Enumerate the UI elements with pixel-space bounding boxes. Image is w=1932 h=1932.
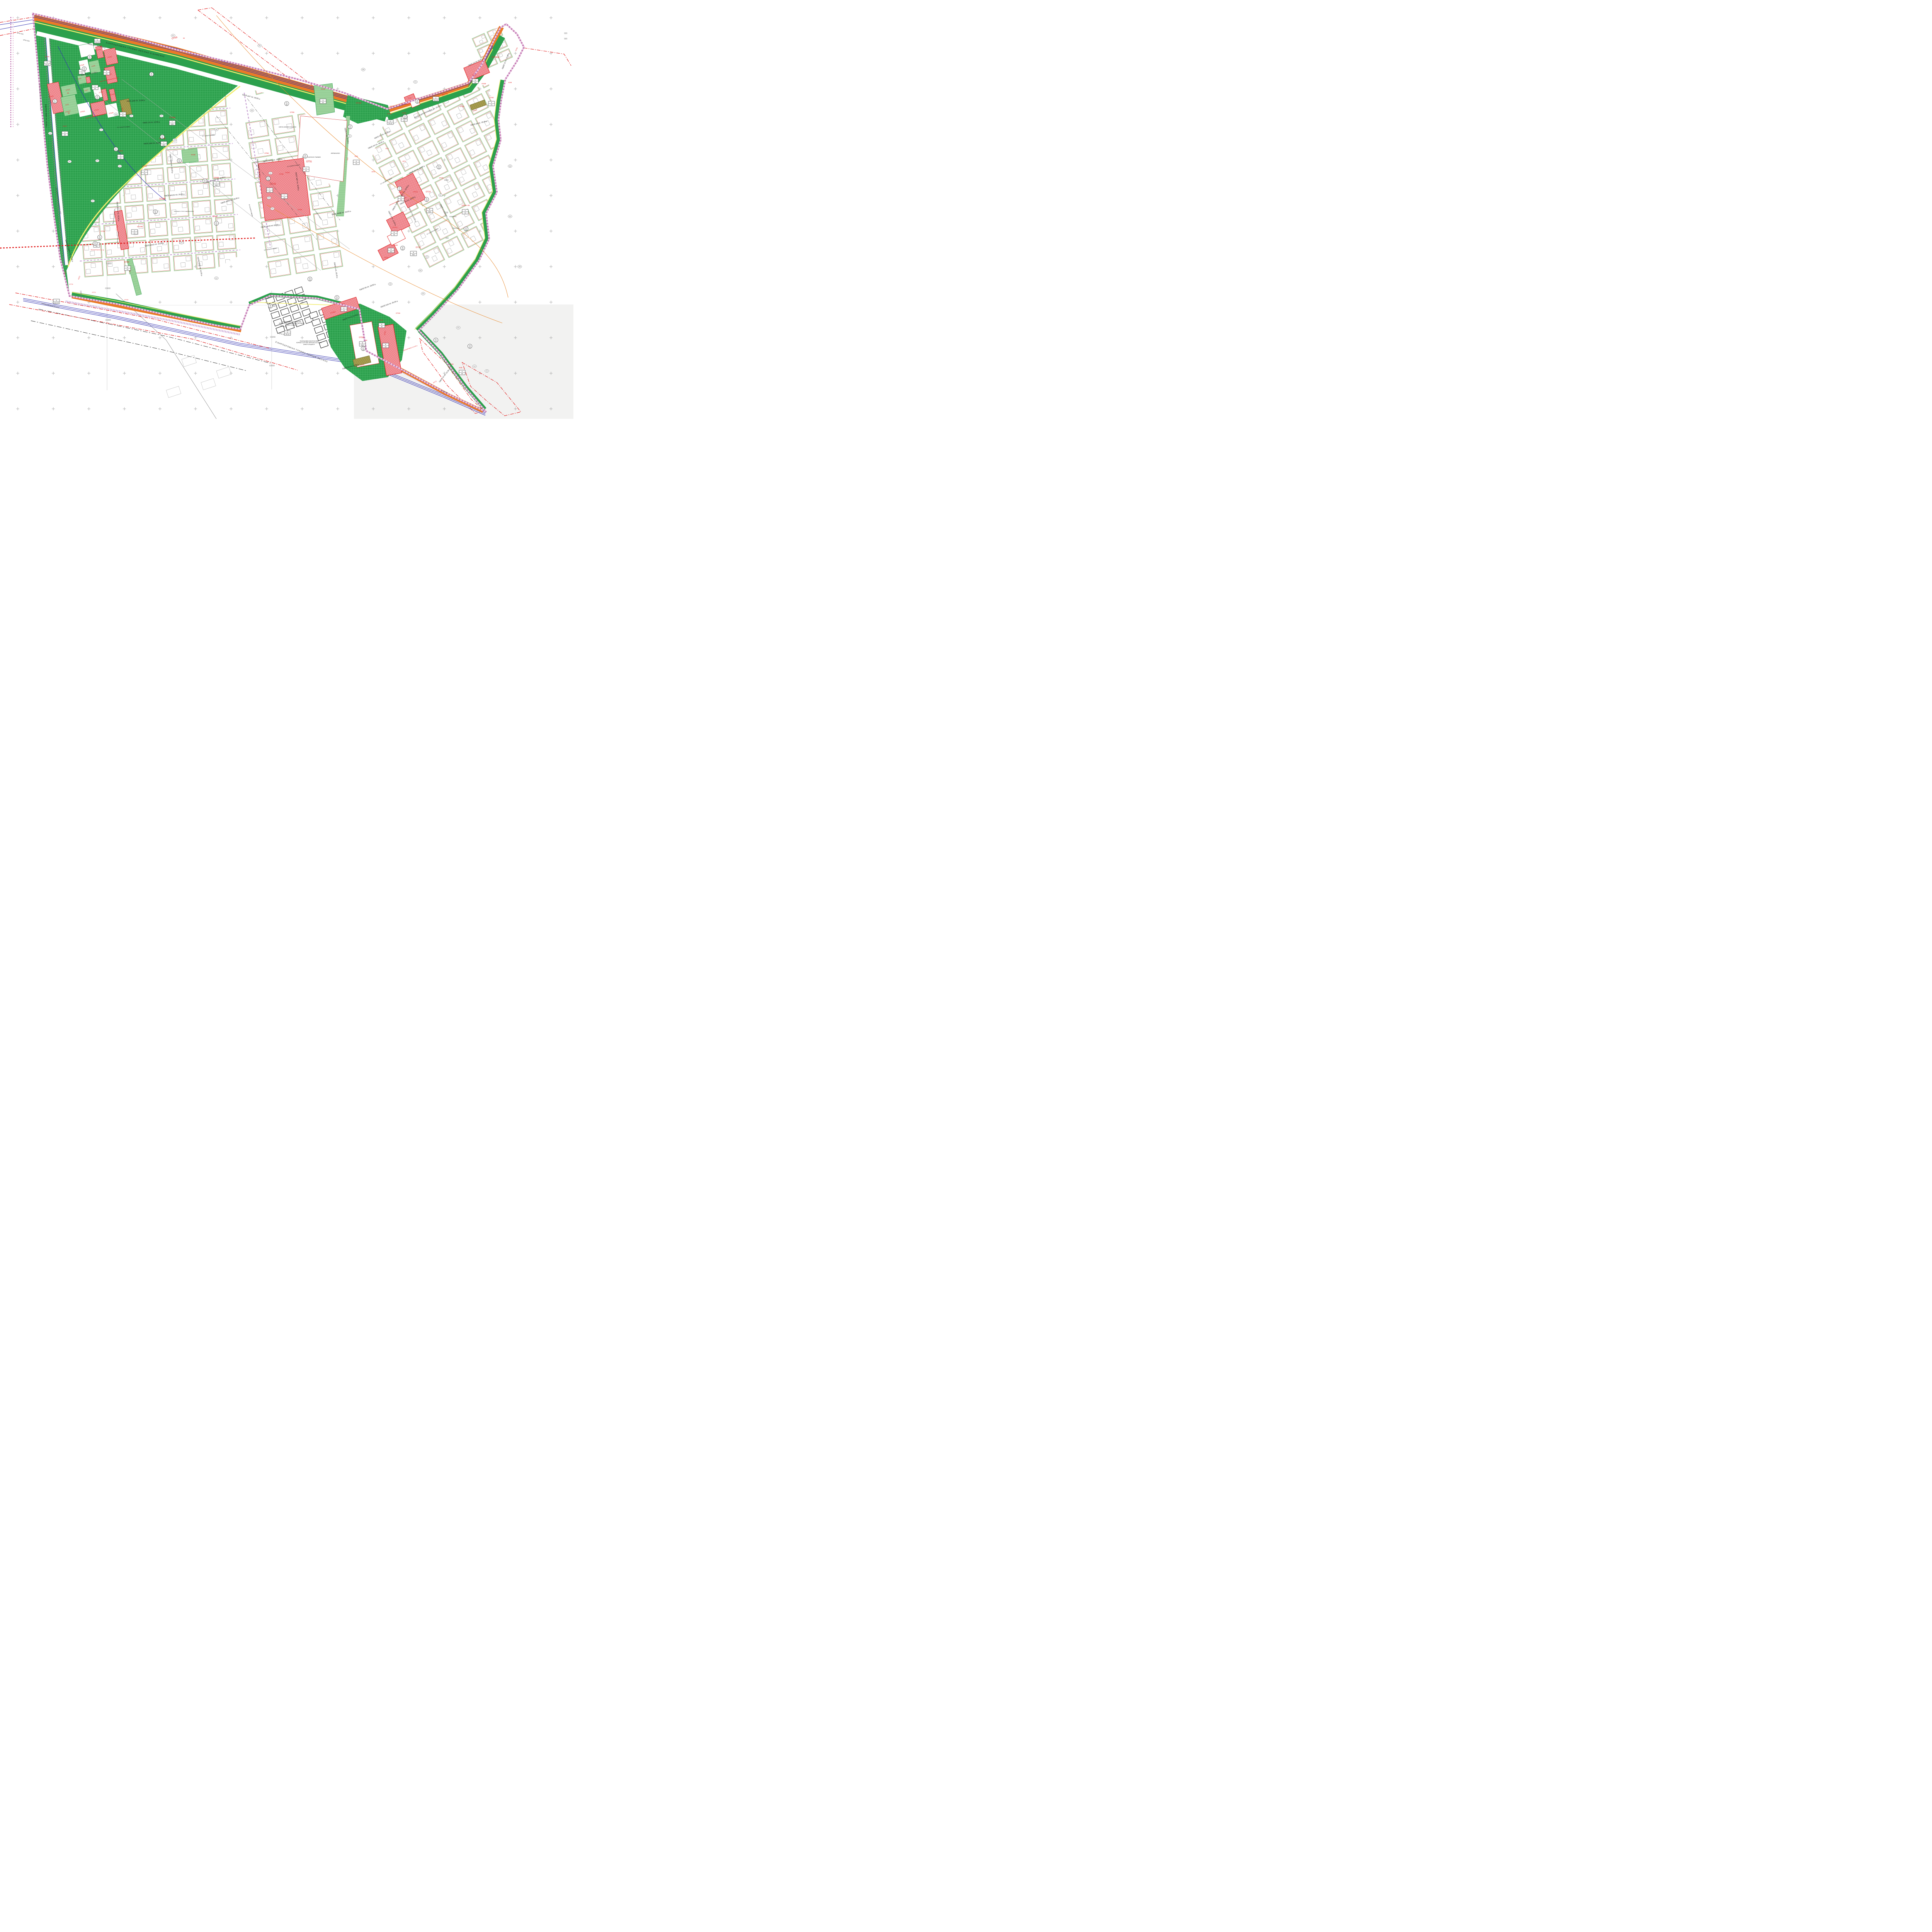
building (198, 190, 203, 195)
building (215, 189, 219, 194)
area-label: ΧΩΡΟΣ ΑΠΟΘΕΣΗΣ ΑΛΑΤΟΣ (279, 126, 296, 128)
badge-top: 02 (162, 135, 163, 137)
parcel-number-text: 009 (389, 283, 391, 285)
zone-code-box: ΒΚΩ (398, 196, 404, 201)
zone-code-bottom: ΥΟ (305, 170, 307, 171)
block-label: ΟΤ46 (298, 209, 302, 211)
parcel-number: 001 (129, 114, 133, 117)
block-label: ΚΧ9 (509, 82, 512, 83)
badge-bottom: 56 (417, 102, 418, 103)
zone-code-bottom: ΚΩ (474, 82, 476, 83)
parcel-number: 036 (114, 113, 118, 116)
parcel-number-text: 004 (160, 115, 162, 117)
zone-code-bottom: ΥΟ (491, 104, 493, 105)
parcel-number: 005 (270, 207, 274, 210)
parcel-number: 021 (180, 241, 184, 244)
block-label: ΟΤ1 (386, 148, 389, 150)
building (202, 243, 206, 248)
building (86, 269, 90, 274)
block-label: ΟΤ71 (92, 291, 96, 293)
badge-top: 01 (465, 227, 467, 229)
block-label: ΚΦ1 (473, 74, 476, 77)
parcel-number: 022 (99, 128, 103, 131)
building (141, 260, 146, 264)
badge-bottom: 00 (115, 150, 117, 151)
building (205, 207, 209, 212)
parcel-badge: 0145 (266, 177, 270, 181)
zone-code-bottom: ΚΩ (269, 190, 271, 192)
badge-bottom: 48 (162, 137, 163, 139)
block-label: ΚΧ7 (347, 157, 349, 160)
building (149, 206, 153, 210)
parcel-badge: 0151 (303, 154, 308, 158)
building (266, 242, 272, 248)
red-note: ΚΦ (68, 112, 70, 114)
zone-code-box: ΑΠΡ (92, 85, 98, 90)
zone-code-box: ΔΥΟ (131, 230, 138, 234)
building (107, 250, 112, 255)
zone-code-box: ΔΧΣ (120, 112, 126, 117)
parcel-badge: 0239 (153, 210, 158, 214)
parcel-number-text: 006 (268, 197, 270, 199)
parcel-number: 002 (485, 369, 489, 372)
building (260, 121, 265, 127)
block-label: ΟΤ15 (396, 312, 400, 314)
block-label: ΟΤ51Β (356, 102, 361, 104)
building (91, 263, 95, 268)
zone-code-bottom: ΚΩ (400, 199, 402, 201)
badge-bottom: 19 (426, 200, 427, 201)
building (203, 255, 207, 260)
block-label: ΚΧ30 (408, 97, 412, 99)
grid-coordinate: 020 (564, 32, 568, 35)
zone-code-box: ΓΚΩ (267, 188, 273, 192)
parcel-number-text: 010 (473, 366, 475, 367)
zone-code-bottom: ΣΙΔ.Ο.Μ (95, 41, 100, 43)
badge-top: 03 (417, 100, 418, 101)
parcel-badge: 0352 (95, 95, 100, 100)
building (318, 194, 324, 199)
block-label: ΟΤ61 (402, 112, 406, 114)
parcel-number-text: 074 (49, 133, 51, 134)
parcel-number: 006 (267, 196, 271, 199)
block-label: ΟΤ58 (359, 337, 364, 339)
building (158, 187, 163, 192)
parcel-number: 008 (173, 138, 177, 141)
parcel-number: 050 (508, 165, 512, 167)
parcel-badge: 0152 (88, 55, 92, 60)
parcel-badge: 0143 (203, 179, 207, 183)
parcel-number: 035 (214, 128, 218, 131)
zone-code-bottom: ΚΩ (385, 346, 387, 347)
badge-top: 17 (115, 148, 117, 149)
grid-coordinate: 03000 (269, 365, 275, 367)
building (303, 264, 308, 269)
building (229, 236, 234, 240)
badge-top: 00 (349, 125, 351, 127)
parcel-number-text: 035 (215, 129, 217, 130)
badge-bottom: 52 (83, 69, 85, 71)
red-note: ΚΦ (67, 92, 69, 94)
badge-bottom: 00 (151, 75, 152, 76)
block-label: ΚΧ29 (191, 154, 196, 156)
building (173, 150, 177, 155)
parcel-badge: 0107 (335, 296, 339, 300)
badge-bottom: 00 (469, 347, 471, 348)
building (223, 147, 228, 151)
zone-code-box: ΔΠΡ (459, 370, 465, 375)
parcel-number: 017 (171, 34, 175, 37)
badge-top: 01 (404, 115, 406, 117)
zone-code-bottom: ΚΩ (106, 73, 108, 75)
building (211, 130, 216, 134)
zone-code-box: ΔΥΟ (353, 160, 359, 165)
city-block (268, 259, 291, 278)
badge-bottom: 58 (362, 349, 364, 350)
zone-code-bottom: ΠΡ-ΣΔ (286, 333, 289, 335)
zone-code-bottom: ΠΡ-ΣΔ (388, 122, 392, 124)
map-shape: ΔΗΜΟΥ ΕΧΕΔΩΡΟΥ (286, 324, 298, 326)
badge-bottom: 61 (404, 117, 406, 119)
building (228, 223, 233, 228)
building (174, 245, 179, 250)
area-label: ΘΕΡΜΟΚΗΠΙΟ (331, 153, 340, 154)
zone-code-bottom: ΥΟ (144, 173, 146, 174)
parcel-badge: 0132 (98, 235, 102, 240)
parcel-number-text: 002 (457, 327, 459, 328)
parcel-number: 009 (388, 282, 392, 285)
zone-code-bottom: ΧΜΟ (162, 144, 165, 146)
building (219, 242, 223, 247)
parcel-badge: 0356 (415, 99, 420, 104)
badge-bottom: 52 (54, 102, 56, 103)
parcel-number: 008 (361, 68, 365, 71)
zone-code-bottom: ΠΡ (461, 373, 463, 374)
city-block (310, 191, 333, 210)
parcel-number-text: 021 (180, 242, 182, 243)
badge-bottom: 45 (267, 179, 269, 180)
building (191, 173, 196, 177)
zone-code-box: ΓΧΜΟ (169, 121, 175, 125)
block-label: ΟΤ59 (449, 363, 454, 365)
building (157, 246, 162, 251)
badge-top: 00 (94, 242, 96, 243)
block-label: ΟΤ33Β (137, 226, 143, 228)
parcel-number: 012 (250, 109, 254, 112)
zone-code-box: ΒΧΜΟ (410, 251, 417, 256)
block-label: ΟΤ48Α (169, 117, 176, 119)
parcel-number: 024 (508, 215, 512, 218)
parcel-badge: 0000 (401, 246, 405, 250)
zone-code-bottom: ΣΙΔ.Ο.Μ (54, 302, 59, 303)
grid-coordinate: 03400 (105, 319, 111, 321)
red-note: ΠΕΖΟΔΡΟΜΟΣ πλ. 2μ (91, 249, 104, 251)
block-label: ΚΧ24 (379, 319, 383, 321)
building (313, 201, 319, 206)
ot52-cluster-block (77, 102, 92, 117)
building (105, 226, 110, 231)
badge-top: 07 (54, 100, 56, 101)
building (178, 227, 183, 232)
block-label: ΚΧ16 (45, 56, 49, 58)
building (182, 203, 187, 208)
building (302, 223, 308, 228)
badge-bottom: 00 (270, 306, 271, 308)
zone-code-box: ΓΚΩ (281, 194, 287, 199)
building (274, 119, 279, 125)
grid-coordinate: 000 (564, 38, 568, 40)
parcel-number-text: 001 (130, 115, 132, 117)
zone-code-box: ΒΚΩ (391, 231, 397, 236)
badge-bottom: 00 (402, 248, 403, 250)
block-label: ΟΤ46 (279, 173, 284, 175)
block-label: ΟΤ51 (306, 161, 312, 163)
building (221, 112, 225, 116)
red-note: ΚΧ (442, 94, 444, 95)
block-label: ΚΧ28 (321, 88, 325, 90)
parcel-badge: 0161 (403, 115, 407, 119)
building (125, 189, 130, 194)
block-label: ΚΧ8 (459, 367, 463, 369)
block-label: ΟΤ2 (355, 155, 358, 157)
block-label: ΟΤ55 (290, 111, 294, 113)
block-label: ΟΤ11Α (392, 226, 398, 228)
parcel-number: 014 (413, 80, 417, 83)
city-block (262, 219, 285, 238)
block-label: ΟΤ18 (416, 247, 421, 249)
parcel-badge: 1700 (114, 147, 118, 151)
zone-code-bottom: ΠΡ-ΣΔ (45, 64, 49, 65)
parcel-number: 001 (439, 194, 442, 196)
badge-top: 02 (83, 67, 85, 69)
building (153, 259, 157, 264)
building (289, 137, 294, 143)
building (213, 153, 217, 158)
parcel-badge: 0144 (177, 159, 182, 163)
building (270, 269, 276, 274)
zone-code-box: ΔΥΟ (341, 307, 347, 311)
parcel-badge: 0252 (82, 67, 87, 71)
building (316, 180, 322, 185)
building (180, 168, 184, 172)
red-note: ΚΦ (366, 340, 367, 341)
parcel-number-text: 008 (173, 139, 175, 141)
zone-code-bottom: ΧΜΟ (171, 123, 174, 125)
parcel-badge: 0000 (348, 125, 352, 129)
zone-code-box: ΔΠΡ (320, 99, 326, 104)
building (219, 254, 224, 259)
zone-code-bottom: ΠΡ (322, 102, 324, 103)
building (158, 175, 162, 180)
building (181, 262, 185, 267)
building (322, 260, 328, 266)
building (203, 184, 208, 189)
zone-code-box: ΔΥΟ (462, 209, 468, 214)
badge-bottom: 43 (204, 181, 206, 183)
parcel-number-text: 015 (422, 293, 424, 294)
parcel-number-text: 024 (509, 216, 511, 217)
block-label: ΚΧ18 (124, 299, 129, 301)
block-label: ΟΤ32 (100, 230, 105, 232)
zone-code-bottom: ΧΜΟ (428, 211, 431, 213)
badge-bottom: 39 (155, 212, 156, 214)
zone-code-bottom: ΠΡ (64, 134, 66, 136)
zone-code-top: Γ (216, 182, 217, 184)
zone-code-box: ΔΥΟ (488, 101, 495, 106)
building (140, 248, 145, 252)
parcel-number-text: 014 (414, 81, 416, 83)
parcel-number-text: 008 (362, 69, 364, 70)
parcel-badge: 0119 (425, 197, 429, 202)
zone-code-box: ΔΣΙΔ.Ο.Μ (433, 97, 439, 101)
badge-bottom: 55 (286, 104, 287, 105)
parcel-number: 001 (348, 134, 352, 137)
badge-top: 01 (438, 165, 440, 167)
building (206, 219, 210, 224)
building (333, 252, 339, 258)
parcel-number-text: 050 (509, 165, 511, 167)
building (277, 145, 283, 151)
zone-code-bottom: ΚΩ (96, 245, 98, 247)
parcel-number-text: 012 (251, 110, 253, 111)
building (127, 213, 131, 218)
block-label: ΟΤ2 (372, 171, 375, 173)
block-label: ΟΤ56Α (492, 56, 499, 59)
zone-code-box: ΔΠΡ-ΣΔ (387, 120, 393, 124)
block-label: ΟΤ1 (403, 160, 406, 162)
parcel-number-text: 013 (215, 277, 217, 279)
red-note: ΚΧ (183, 37, 185, 39)
building (150, 229, 155, 234)
zone-code-bottom: ΧΜΟ (389, 251, 393, 252)
building (296, 258, 301, 264)
parcel-badge: 0000 (93, 241, 97, 246)
badge-top: 01 (99, 236, 100, 237)
zone-code-bottom: ΣΙΔ.Ο.Μ (434, 99, 438, 101)
grid-coordinate: 03800 (106, 263, 112, 265)
city-block (291, 235, 314, 254)
zone-code-box: ΒΚΩ (383, 343, 389, 348)
parcel-number-text: 002 (486, 370, 488, 372)
badge-top: 00 (402, 247, 403, 248)
zone-code-bottom: ΥΟ (355, 163, 357, 164)
zone-code-box: ΔΥΟ (141, 170, 148, 175)
grid-coordinate: 000 (446, 237, 449, 240)
parcel-badge: 0155 (285, 102, 289, 106)
city-block (246, 120, 269, 139)
badge-top: 01 (426, 198, 427, 199)
zone-code-top: Γ (284, 195, 285, 196)
parcel-number: 010 (118, 165, 122, 167)
badge-top: 01 (336, 296, 338, 298)
grid-coordinate: 4200 (444, 212, 448, 214)
zone-code-bottom: ΚΩ (393, 234, 395, 235)
parcel-number: 010 (473, 365, 476, 367)
parcel-badge: 0752 (53, 99, 57, 104)
grid-coordinate: 4400 (444, 179, 448, 182)
building (114, 267, 118, 272)
building (155, 223, 160, 228)
building (84, 246, 89, 250)
block-label: ΟΤ56Δ (401, 103, 406, 105)
parcel-number: 004 (258, 44, 262, 47)
block-label: ΚΧ20 (387, 113, 392, 115)
parcel-badge: 0158 (361, 347, 366, 351)
zone-code-bottom: ΚΩ (284, 197, 286, 198)
building (264, 229, 270, 234)
kx29 (182, 148, 198, 163)
building (222, 206, 226, 211)
building (276, 261, 281, 267)
zone-code-box: ΔΥΟ (124, 266, 131, 270)
zone-code-top: Γ (172, 121, 173, 123)
zone-code-bottom: ΥΟ (464, 212, 466, 214)
block-label: ΟΤ40 (213, 216, 218, 218)
area-label: ΚΑΤΑΣΚΕΥΗ ΤΥΠΟΥ ΘΕΡΜΟΚΗΠΙΟΥ (174, 211, 194, 212)
zone-code-box: ΔΚΩ (472, 79, 478, 83)
parcel-number: 007 (91, 199, 95, 202)
block-label: ΚΧ17 (63, 125, 67, 127)
grid-coordinate: 03600 (105, 287, 111, 290)
zone-code-bottom: ΥΟ (127, 269, 129, 270)
badge-top: 01 (309, 277, 311, 279)
parcel-number-text: 007 (92, 200, 94, 202)
badge-bottom: 46 (309, 279, 311, 281)
parcel-number: 013 (214, 277, 218, 279)
parcel-badge: 0126 (464, 227, 468, 231)
zone-code-box: ΓΧΜΟ (213, 182, 219, 186)
badge-top: 03 (97, 96, 98, 97)
badge-top: 03 (469, 345, 471, 346)
building (131, 195, 136, 199)
parcel-badge: 0300 (468, 344, 472, 349)
parcel-number: 074 (48, 132, 52, 134)
parcel-number-text: 013 (426, 256, 428, 258)
zone-code-box: ΒΧΜΟ (388, 248, 394, 253)
badge-top: 01 (435, 338, 437, 340)
badge-bottom: 52 (97, 98, 98, 99)
badge-top: 01 (179, 159, 180, 161)
badge-top: 01 (399, 187, 400, 189)
building (196, 167, 201, 171)
parcel-number-text: 001 (349, 135, 350, 137)
building (189, 137, 194, 142)
zone-code-bottom: ΧΜΟ (215, 184, 218, 186)
parcel-number-text: 010 (119, 165, 121, 167)
zone-code-box: ΔΠΡ-ΣΔ (284, 331, 291, 335)
parcel-number: 015 (421, 292, 425, 295)
badge-bottom: 51 (304, 156, 306, 158)
parcel-badge: 0140 (214, 221, 219, 226)
zone-code-box: ΓΧΜΟ (161, 141, 167, 146)
parcel-badge: 0000 (269, 304, 273, 308)
map-shape: ΔΗΜΟΥ ΕΧΕΔΩΡΟΥ (303, 344, 315, 345)
badge-bottom: 27 (435, 340, 437, 342)
zone-code-bottom: ΧΣ (122, 115, 124, 116)
parcel-number-text: 017 (172, 35, 174, 36)
building (194, 202, 198, 207)
building (132, 207, 136, 211)
building (175, 174, 179, 179)
badge-top: 00 (270, 304, 271, 306)
block-label: ΟΤ23 (460, 105, 464, 107)
zone-code-bottom: ΥΟ (343, 310, 345, 311)
zone-code-top: Γ (163, 142, 164, 144)
block-label: ΟΤ42 (142, 165, 147, 168)
badge-top: 01 (216, 222, 217, 223)
zone-code-bottom: ΥΟ (134, 232, 136, 234)
building (304, 236, 310, 242)
